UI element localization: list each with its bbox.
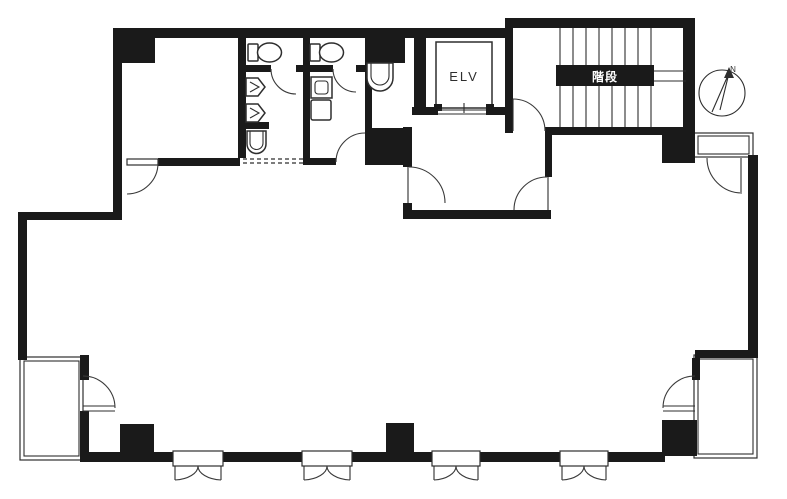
door-stall-left — [271, 69, 296, 94]
compass-north-label: N — [730, 65, 736, 74]
door-balcony-right — [663, 376, 695, 411]
elevator-door — [438, 110, 486, 114]
double-door-2 — [302, 451, 352, 480]
door-stairwell — [513, 99, 545, 131]
door-stall-right — [333, 69, 356, 92]
sink-icon-mens — [247, 131, 266, 154]
door-balcony-left — [83, 376, 115, 411]
sink-icon-hall — [367, 63, 393, 91]
urinal-icon-2 — [246, 104, 265, 122]
opening-wc-dashed — [243, 159, 303, 163]
door-room-topleft — [127, 159, 158, 194]
elevator-label: ELV — [449, 69, 479, 84]
door-hall-left — [408, 167, 445, 203]
door-wc-entry — [336, 133, 365, 162]
fire-escape-alcove — [694, 133, 753, 157]
balcony-right — [694, 355, 757, 458]
toilet-icon-left — [248, 43, 282, 62]
compass-icon: N — [699, 65, 745, 116]
double-door-1 — [173, 451, 223, 480]
staircase: 階段 — [556, 28, 686, 127]
door-fire-escape — [707, 158, 742, 193]
cabinet-womens — [311, 100, 331, 120]
door-hall-right — [514, 177, 548, 210]
urinal-icon-1 — [246, 78, 265, 96]
stair-handrail — [654, 71, 686, 81]
double-door-4 — [560, 451, 608, 480]
doors — [83, 69, 742, 411]
double-door-3 — [432, 451, 480, 480]
floor-plan-drawing: 階段 ELV N — [0, 0, 787, 499]
elevator: ELV — [434, 42, 494, 114]
balcony-left — [20, 357, 83, 460]
floor-plan: 階段 ELV N — [0, 0, 787, 499]
stairs-label: 階段 — [592, 69, 618, 84]
sink-icon-womens — [311, 77, 332, 98]
toilet-icon-right — [310, 43, 344, 62]
